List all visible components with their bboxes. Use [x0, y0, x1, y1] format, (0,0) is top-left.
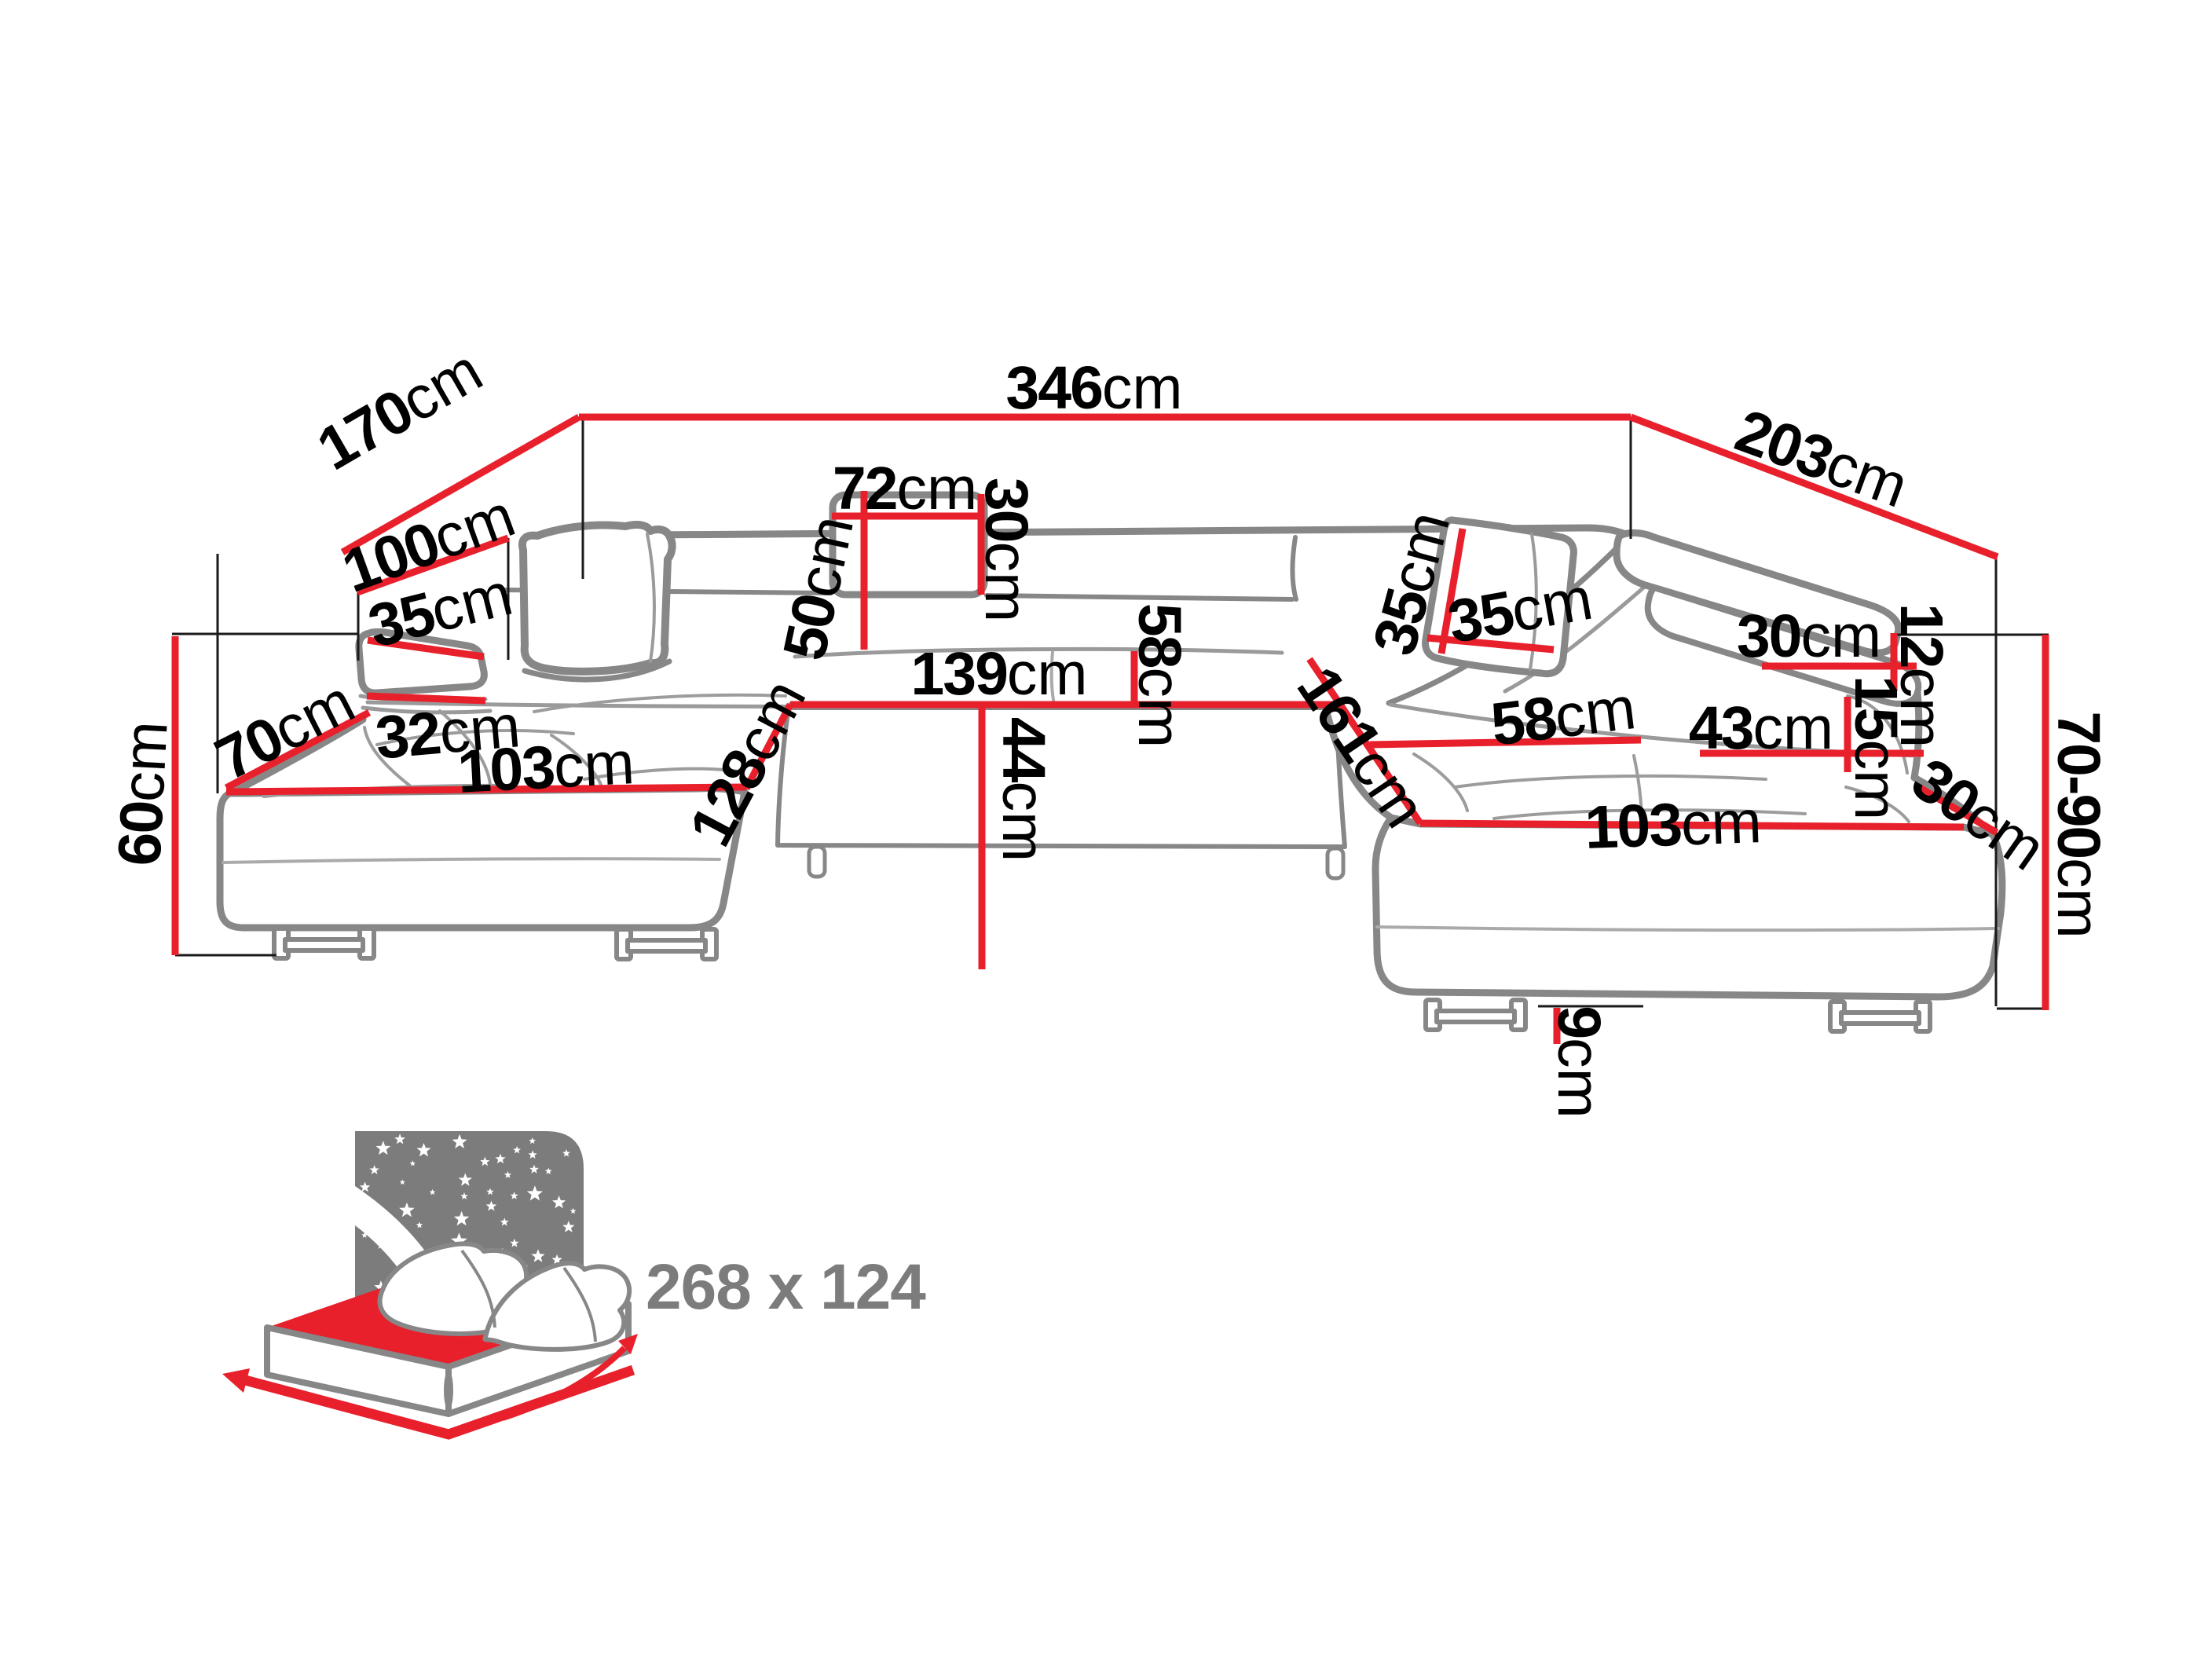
svg-text:103cm: 103cm: [1584, 788, 1763, 862]
svg-text:72cm: 72cm: [833, 455, 977, 522]
svg-text:139cm: 139cm: [910, 640, 1087, 708]
svg-text:60cm: 60cm: [105, 720, 181, 868]
svg-text:103cm: 103cm: [456, 729, 635, 806]
svg-text:346cm: 346cm: [1005, 354, 1182, 422]
svg-text:44cm: 44cm: [990, 717, 1057, 862]
svg-text:70-90cm: 70-90cm: [2045, 711, 2112, 939]
svg-text:43cm: 43cm: [1689, 694, 1833, 762]
svg-text:30cm: 30cm: [1737, 602, 1881, 670]
svg-text:30cm: 30cm: [972, 478, 1040, 622]
svg-text:268 x 124: 268 x 124: [646, 1251, 926, 1323]
svg-text:9cm: 9cm: [1545, 1005, 1613, 1118]
svg-text:58cm: 58cm: [1126, 603, 1193, 748]
svg-text:15cm: 15cm: [1842, 676, 1910, 820]
